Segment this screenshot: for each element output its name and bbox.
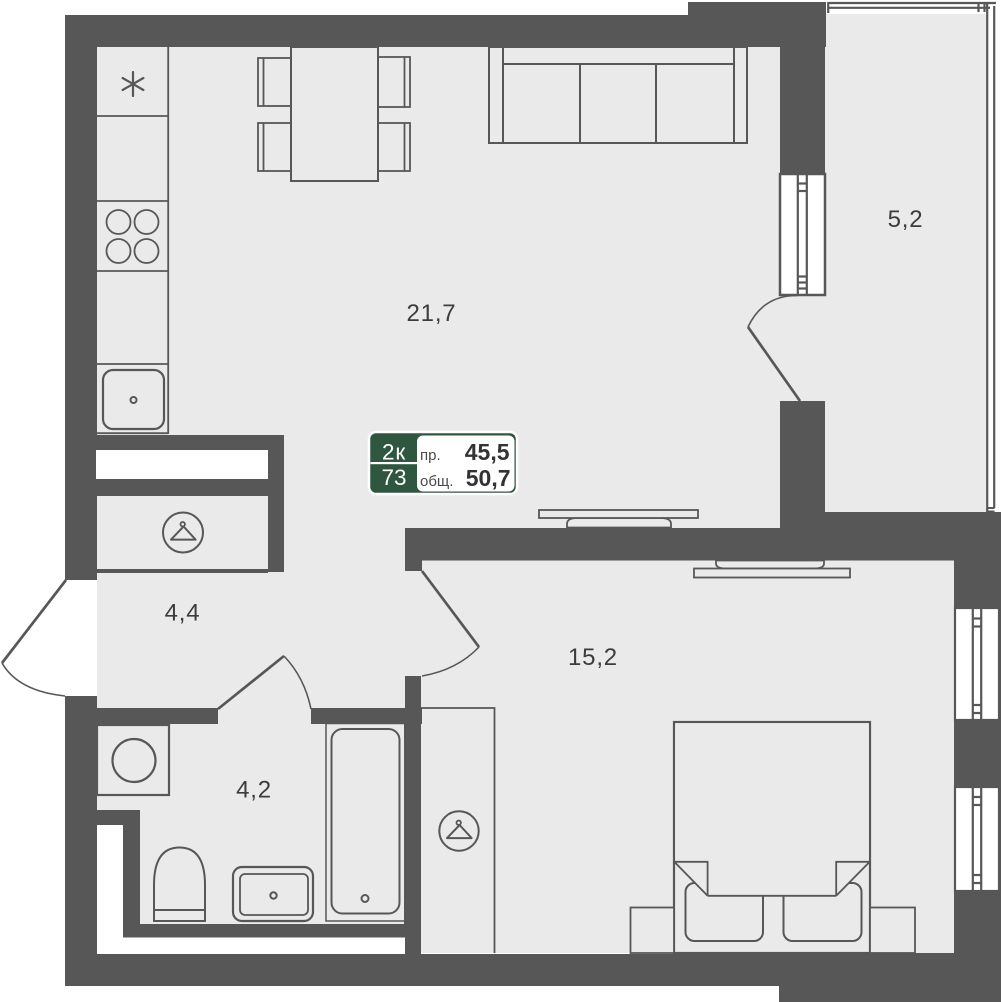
svg-text:50,7: 50,7 (466, 465, 511, 491)
svg-text:15,2: 15,2 (568, 644, 618, 671)
svg-text:73: 73 (381, 465, 406, 490)
svg-text:общ.: общ. (420, 473, 453, 490)
svg-text:пр.: пр. (420, 447, 441, 464)
svg-text:21,7: 21,7 (407, 300, 457, 327)
svg-text:2к: 2к (382, 440, 406, 465)
svg-text:4,4: 4,4 (165, 600, 201, 627)
svg-text:5,2: 5,2 (888, 206, 924, 233)
svg-text:45,5: 45,5 (465, 439, 510, 465)
svg-text:4,2: 4,2 (236, 777, 272, 804)
